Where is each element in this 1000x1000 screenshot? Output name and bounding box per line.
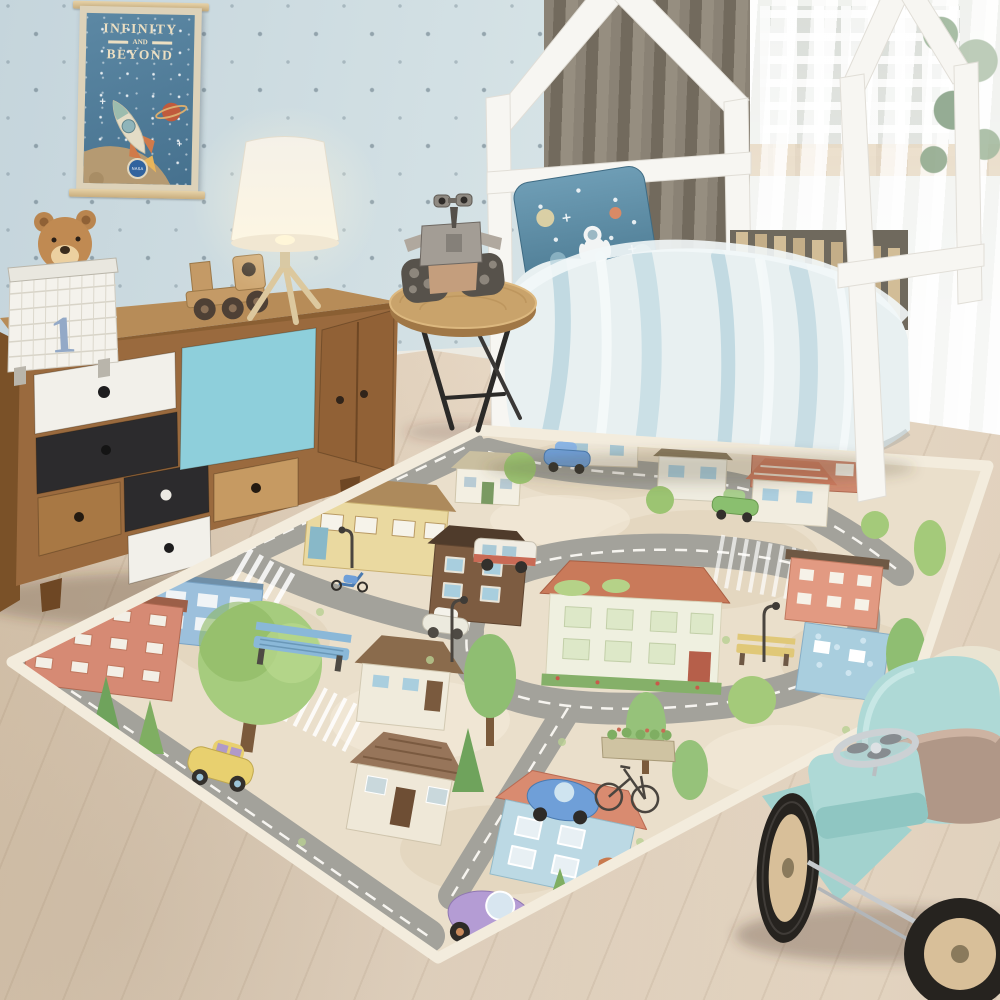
poster-title-line3: BEYOND [86, 46, 194, 64]
robot-eyes [434, 194, 472, 207]
wire-basket: 1 [8, 258, 118, 386]
house-bed-footboard [838, 0, 984, 502]
kids-room-scene: 1 [0, 0, 1000, 1000]
poster-title-line1: INFINITY [86, 20, 194, 38]
basket-number: 1 [49, 306, 78, 364]
poster-paper: INFINITY AND BEYOND [76, 6, 202, 193]
space-poster: INFINITY AND BEYOND [72, 3, 206, 196]
cabinet-door-blue [180, 328, 316, 470]
bed-shadow [485, 452, 915, 484]
